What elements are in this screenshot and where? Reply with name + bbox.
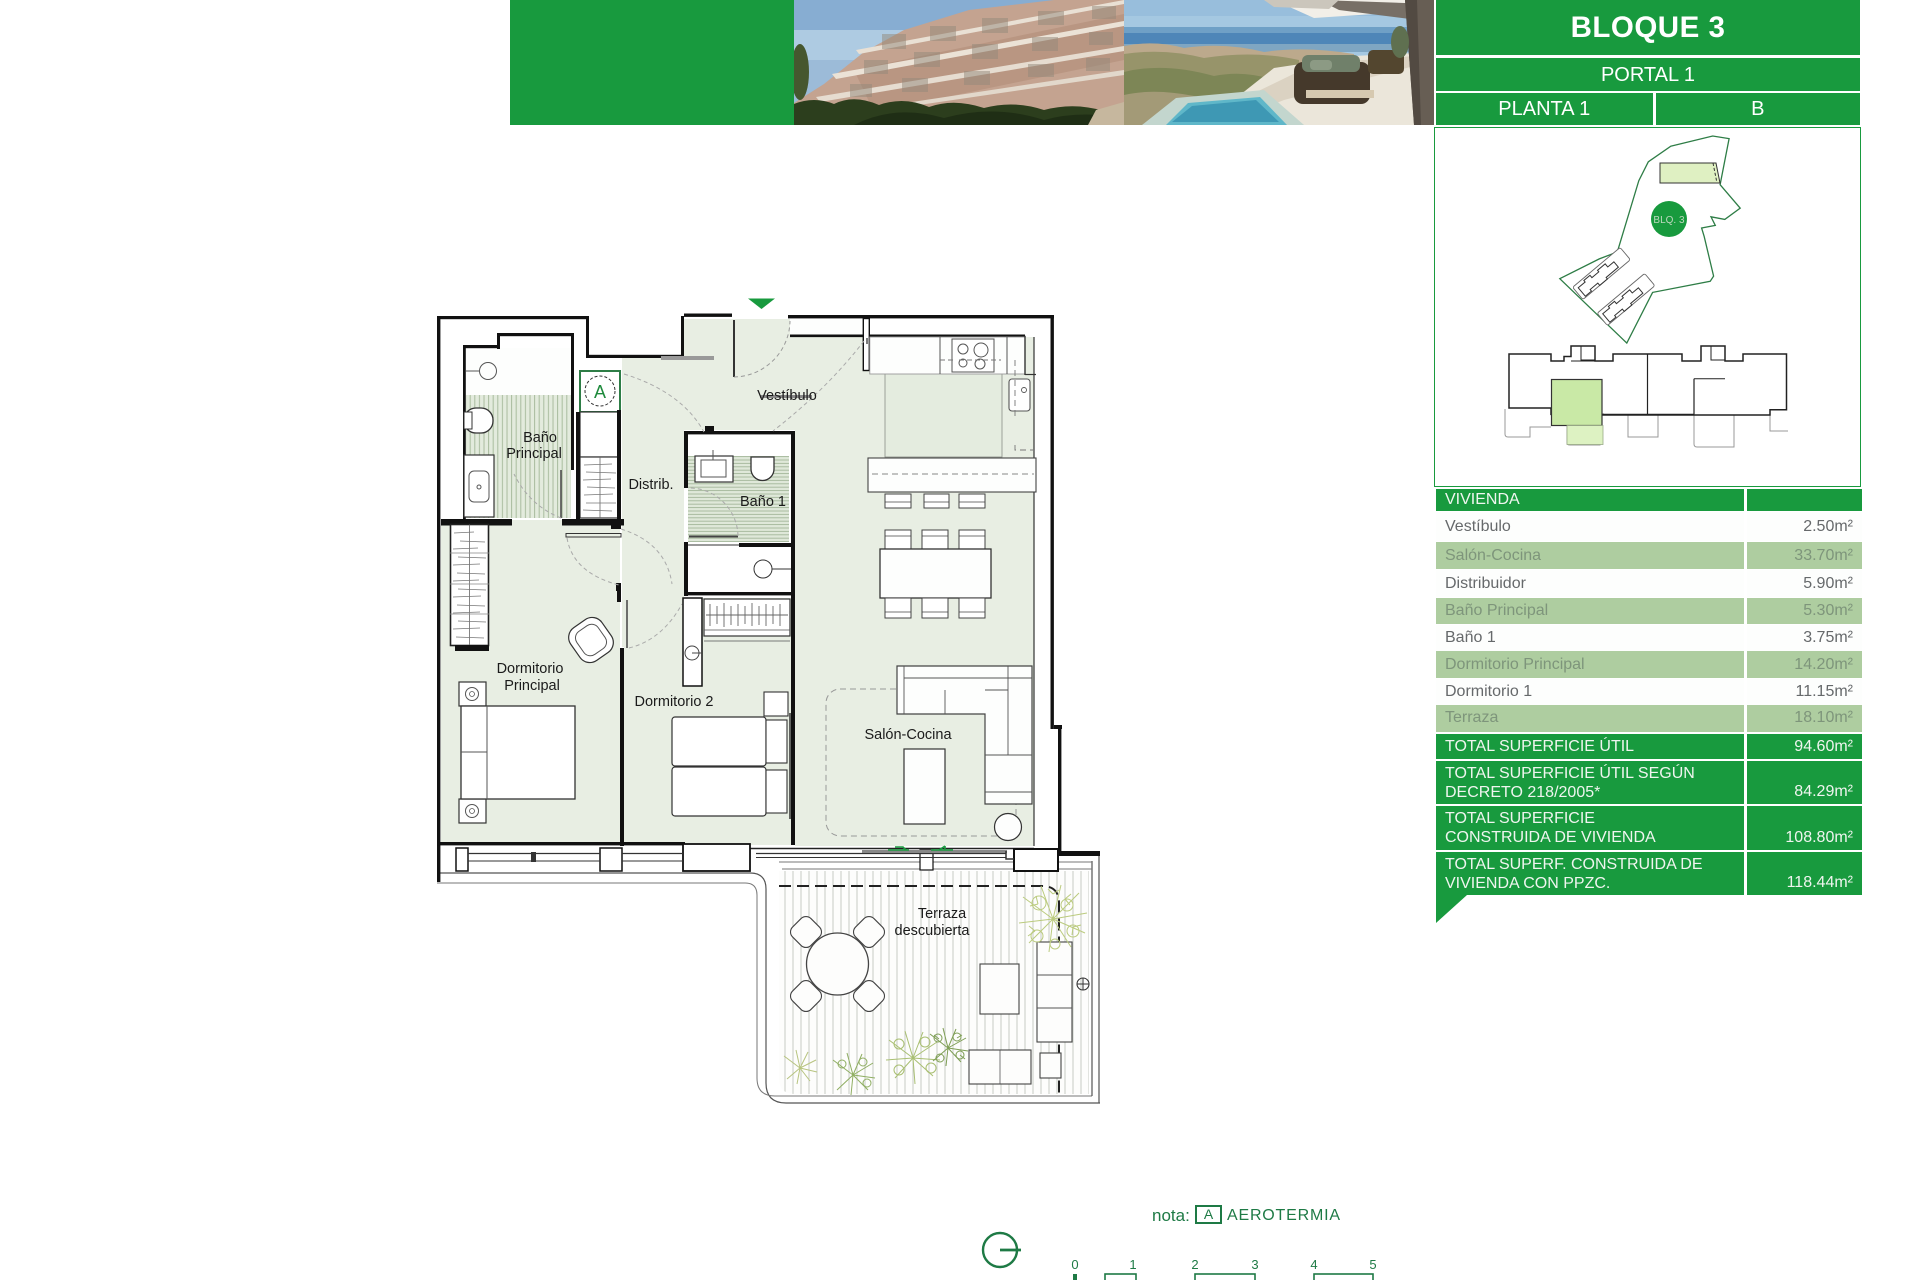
svg-text:Baño: Baño (523, 430, 557, 446)
svg-text:4: 4 (1310, 1257, 1317, 1272)
svg-text:Baño 1: Baño 1 (740, 494, 786, 510)
svg-text:descubierta: descubierta (895, 923, 971, 939)
svg-text:Vestíbulo: Vestíbulo (757, 388, 817, 404)
svg-text:Distrib.: Distrib. (628, 477, 673, 493)
svg-text:BLQ. 3: BLQ. 3 (1653, 215, 1685, 226)
svg-text:Principal: Principal (506, 446, 562, 462)
svg-text:Principal: Principal (504, 678, 560, 694)
svg-text:3: 3 (1251, 1257, 1258, 1272)
svg-text:A: A (594, 382, 606, 402)
svg-text:5: 5 (1369, 1257, 1376, 1272)
svg-text:2: 2 (1191, 1257, 1198, 1272)
svg-text:Terraza: Terraza (918, 906, 967, 922)
svg-text:1: 1 (1129, 1257, 1136, 1272)
svg-text:0: 0 (1071, 1257, 1078, 1272)
svg-text:Dormitorio 2: Dormitorio 2 (635, 694, 714, 710)
svg-text:Salón-Cocina: Salón-Cocina (864, 727, 952, 743)
svg-text:Dormitorio: Dormitorio (497, 661, 564, 677)
